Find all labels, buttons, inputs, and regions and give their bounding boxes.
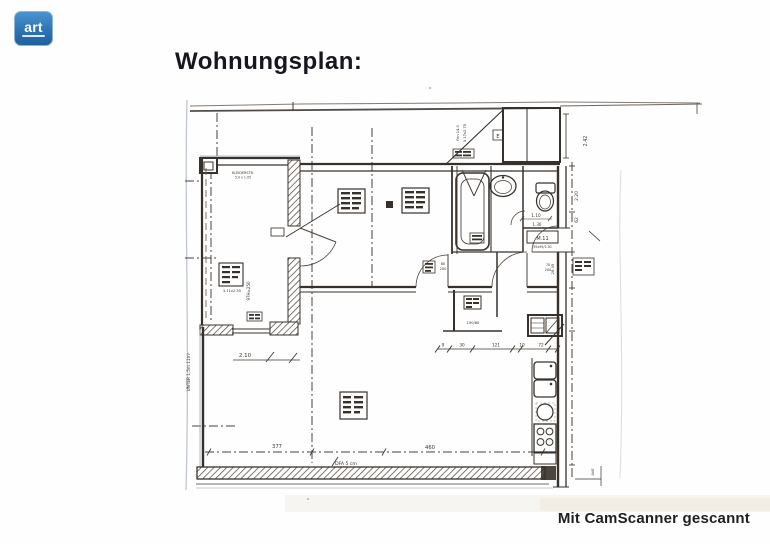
stove [534,424,556,452]
margin-dim: 2.42 [583,136,589,147]
dim-label: 377 [272,444,282,450]
closet-dims: 5.0 x 1.05 [235,176,251,180]
annex-note: 5.17x2.75 [463,124,467,142]
annex-note: Fen 14.0 [456,125,460,141]
chain-dim: 10 [519,343,525,348]
margin-dim: AVE [591,468,595,476]
dimension-chain [233,216,560,466]
dim-label: 1.10 [531,213,541,218]
floor-note: DFA 5 cm [335,461,357,467]
walls [196,108,601,488]
door-size: 200 [440,267,448,271]
kitchen-sink-basin [534,380,556,397]
chain-dim: 30 [459,343,465,348]
margin-dim: 28.05 [550,263,555,274]
margin-dim: 2.20 [574,191,580,201]
label-boxes [219,130,594,419]
axis-lines [185,113,572,480]
dim-label: 1.30 [533,222,542,227]
floor-plan-drawing: KLEIDERSTR. 5.0 x 1.05 3.11x2.55 97H=250… [0,0,770,544]
camscanner-watermark: Mit CamScanner gescannt [558,510,750,527]
niche-dim: 190/80 [467,321,480,325]
door-tag-sub: 95x95/1.30 [533,245,551,249]
kitchen-boiler [537,404,553,420]
toilet-bowl [537,191,554,211]
dim-label: 2.10 [239,353,252,359]
chain-dim: 9 [442,343,445,348]
window-note: 97H=250 [246,281,251,301]
dim-label: 460 [425,445,435,451]
door-tag: M.11 [536,236,548,242]
margin-dim: 62 [574,217,580,223]
chain-dim: 121 [492,343,500,348]
annotation-texts: KLEIDERSTR. 5.0 x 1.05 3.11x2.55 97H=250… [186,124,595,476]
door-size: 80 [441,262,446,266]
room-dims: 3.11x2.55 [223,289,241,293]
annex-mark: E [496,134,499,140]
closet-label: KLEIDERSTR. [232,171,254,175]
slope-note: UNTER 1,5m 11m² [186,352,191,391]
kitchen-sink-basin [534,362,556,379]
chain-dim: 72 [538,343,544,348]
